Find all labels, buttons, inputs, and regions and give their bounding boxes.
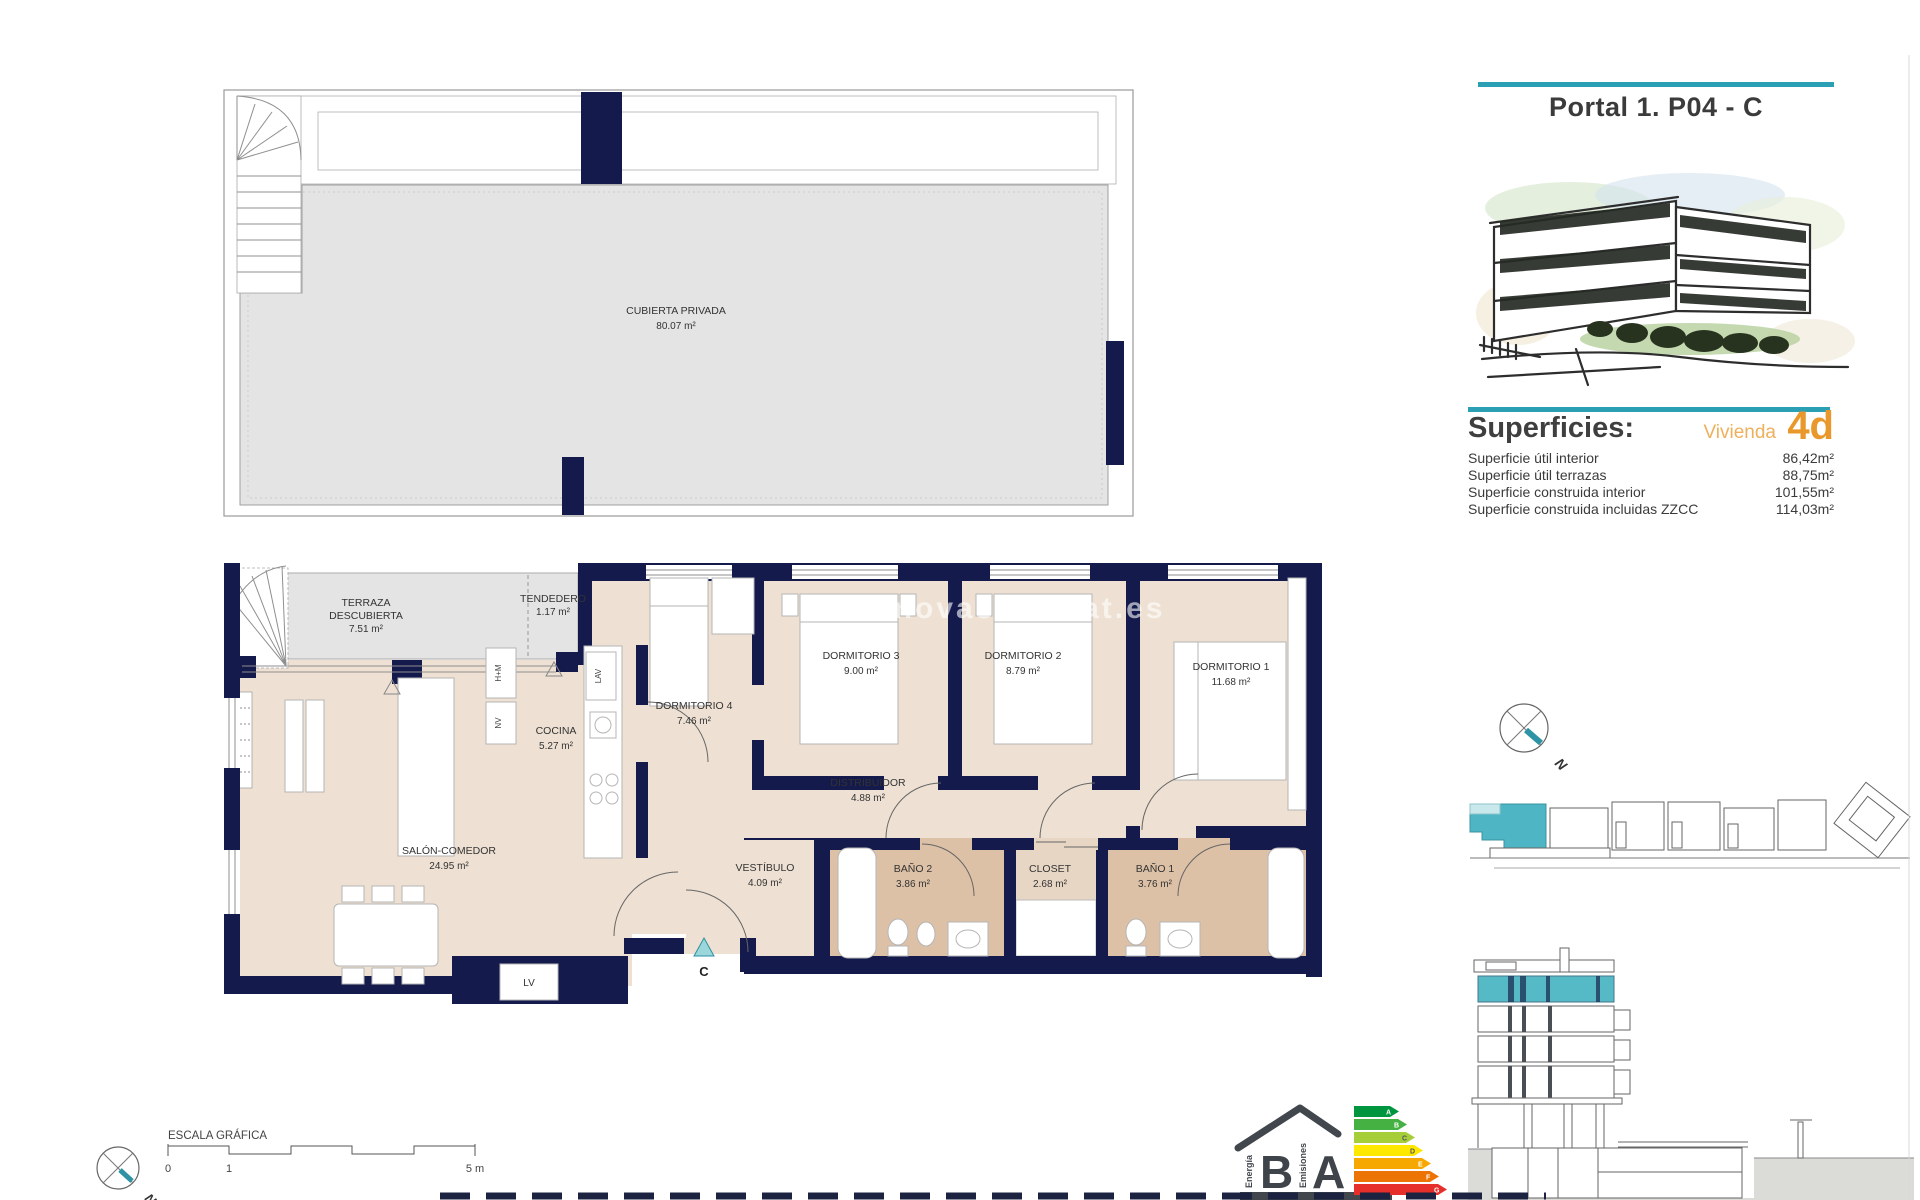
room-label-cubierta: CUBIERTA PRIVADA bbox=[626, 305, 726, 317]
page-title: Portal 1. P04 - C bbox=[1478, 92, 1834, 123]
room-label-dorm3: DORMITORIO 3 bbox=[823, 650, 900, 662]
superficies-row-value: 88,75m² bbox=[1783, 467, 1834, 484]
room-area-distribuidor: 4.88 m² bbox=[851, 793, 886, 804]
room-label-bano2: BAÑO 2 bbox=[894, 862, 933, 875]
scale-tick-5: 5 m bbox=[466, 1163, 484, 1175]
upper-floor-plan: CUBIERTA PRIVADA 80.07 m² bbox=[224, 90, 1133, 516]
room-area-dorm3: 9.00 m² bbox=[844, 666, 879, 677]
room-area-bano1: 3.76 m² bbox=[1138, 879, 1173, 890]
energy-level-e: E bbox=[1418, 1162, 1423, 1169]
apartment-floor-plan: TERRAZA DESCUBIERTA 7.51 m² TENDEDERO 1.… bbox=[224, 563, 1322, 1004]
terrace-area bbox=[252, 573, 578, 659]
energy-level-c: C bbox=[1402, 1136, 1407, 1143]
compass-rose-bottom-icon: N bbox=[97, 1147, 160, 1200]
room-label-bano1: BAÑO 1 bbox=[1136, 862, 1175, 875]
appliance-label-lav: LAV bbox=[594, 668, 603, 683]
room-label-tendedero: TENDEDERO bbox=[520, 593, 586, 605]
site-plan bbox=[1470, 782, 1910, 868]
superficies-row-label: Superficie construida incluidas ZZCC bbox=[1468, 501, 1698, 518]
superficies-row: Superficie útil interior 86,42m² bbox=[1468, 450, 1834, 467]
roof-terrace-area bbox=[240, 185, 1108, 505]
energy-energia-label: Energía bbox=[1244, 1154, 1254, 1188]
room-label-terraza2: DESCUBIERTA bbox=[329, 610, 403, 622]
room-label-salon: SALÓN-COMEDOR bbox=[402, 844, 496, 857]
building-section bbox=[1468, 948, 1914, 1200]
vivienda-code: 4d bbox=[1787, 404, 1834, 449]
room-label-distribuidor: DISTRIBUIDOR bbox=[830, 777, 906, 789]
compass-rose-icon: N bbox=[1500, 704, 1571, 774]
energy-rating-logo: B A Energía Emisiones A B C D E F G bbox=[1238, 1106, 1447, 1200]
room-label-closet: CLOSET bbox=[1029, 863, 1072, 875]
appliance-label-nv: NV bbox=[494, 717, 503, 729]
superficies-row-label: Superficie útil terrazas bbox=[1468, 467, 1607, 484]
room-area-cubierta: 80.07 m² bbox=[656, 321, 696, 332]
room-area-bano2: 3.86 m² bbox=[896, 879, 931, 890]
room-label-dorm4: DORMITORIO 4 bbox=[656, 700, 733, 712]
energy-letter-a: A bbox=[1312, 1146, 1345, 1198]
vivienda-label: Vivienda bbox=[1703, 422, 1776, 444]
room-area-closet: 2.68 m² bbox=[1033, 879, 1068, 890]
energy-level-a: A bbox=[1386, 1110, 1391, 1117]
superficies-row: Superficie construida incluidas ZZCC 114… bbox=[1468, 501, 1834, 518]
scale-tick-1: 1 bbox=[226, 1163, 232, 1175]
room-area-terraza: 7.51 m² bbox=[349, 624, 384, 635]
scale-bar-title: ESCALA GRÁFICA bbox=[168, 1129, 267, 1142]
superficies-row-label: Superficie útil interior bbox=[1468, 450, 1599, 467]
title-accent-rule bbox=[1478, 82, 1834, 87]
room-area-cocina: 5.27 m² bbox=[539, 741, 574, 752]
entrance-letter: C bbox=[699, 964, 709, 979]
superficies-row-value: 101,55m² bbox=[1775, 484, 1834, 501]
scale-tick-0: 0 bbox=[165, 1163, 171, 1175]
superficies-row-value: 114,03m² bbox=[1776, 501, 1834, 518]
energy-level-f: F bbox=[1426, 1175, 1431, 1182]
energy-level-b: B bbox=[1394, 1123, 1399, 1130]
building-sketch bbox=[1476, 173, 1855, 385]
scale-bar: ESCALA GRÁFICA 0 1 5 m bbox=[165, 1129, 484, 1175]
room-area-dorm1: 11.68 m² bbox=[1212, 677, 1251, 688]
superficies-row-value: 86,42m² bbox=[1783, 450, 1834, 467]
room-area-dorm2: 8.79 m² bbox=[1006, 666, 1041, 677]
superficies-rows: Superficie útil interior 86,42m² Superfi… bbox=[1468, 450, 1834, 518]
superficies-heading: Superficies: bbox=[1468, 412, 1634, 444]
compass-north-label: N bbox=[1552, 755, 1571, 774]
room-area-dorm4: 7.46 m² bbox=[677, 716, 712, 727]
energy-letter-b: B bbox=[1260, 1146, 1293, 1198]
superficies-row-label: Superficie construida interior bbox=[1468, 484, 1645, 501]
appliance-label-lv: LV bbox=[523, 978, 535, 989]
room-label-terraza: TERRAZA bbox=[341, 597, 390, 609]
energy-emisiones-label: Emisiones bbox=[1298, 1143, 1308, 1188]
compass-north-label-bottom: N bbox=[142, 1191, 160, 1200]
roof-stair bbox=[237, 96, 301, 293]
plan-canvas: CUBIERTA PRIVADA 80.07 m² bbox=[0, 0, 1920, 1200]
energy-level-d: D bbox=[1410, 1149, 1415, 1156]
room-label-vestibulo: VESTÍBULO bbox=[736, 861, 795, 874]
room-area-vestibulo: 4.09 m² bbox=[748, 878, 783, 889]
room-label-dorm2: DORMITORIO 2 bbox=[985, 650, 1062, 662]
appliance-label-hm: H+M bbox=[494, 664, 503, 681]
room-label-dorm1: DORMITORIO 1 bbox=[1193, 661, 1270, 673]
watermark: www.novashabitat.es bbox=[804, 592, 1166, 625]
superficies-row: Superficie útil terrazas 88,75m² bbox=[1468, 467, 1834, 484]
room-area-tendedero: 1.17 m² bbox=[536, 607, 571, 618]
room-label-cocina: COCINA bbox=[536, 725, 577, 737]
energy-arrow-scale: A B C D E F G bbox=[1354, 1106, 1447, 1195]
room-area-salon: 24.95 m² bbox=[429, 861, 469, 872]
superficies-row: Superficie construida interior 101,55m² bbox=[1468, 484, 1834, 501]
superficies-panel: Superficies: Vivienda 4d Superficie útil… bbox=[1468, 412, 1834, 518]
